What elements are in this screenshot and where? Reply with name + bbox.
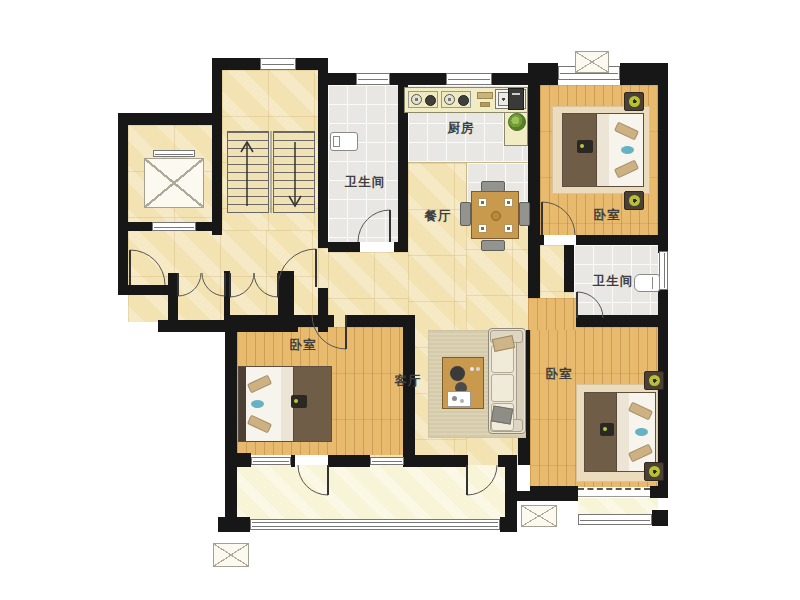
wall: [328, 455, 370, 467]
staircase-icon: [227, 131, 269, 213]
plate-icon: [504, 224, 513, 233]
room-label-bedroom-right-top: 卧室: [594, 207, 621, 224]
burner-icon: [444, 94, 455, 105]
pillow-icon: [614, 160, 639, 179]
wall: [564, 245, 574, 292]
window-icon: [578, 514, 652, 525]
ac-unit-icon: [521, 505, 557, 527]
bed-sheet: [617, 393, 629, 471]
wall: [403, 315, 415, 467]
wall: [404, 455, 468, 467]
balcony-window-icon: [250, 519, 500, 530]
wall: [294, 315, 334, 327]
wall: [158, 320, 298, 332]
wall: [620, 63, 668, 85]
chair-icon: [481, 240, 505, 251]
decor-icon: [476, 367, 480, 371]
plate-icon: [478, 224, 487, 233]
vent-icon: [480, 102, 490, 107]
washer-icon: [330, 132, 358, 151]
toilet-tank: [652, 277, 657, 289]
chair-icon: [519, 202, 530, 226]
wall: [517, 491, 578, 501]
wall: [540, 235, 544, 245]
pillow-icon: [247, 375, 272, 394]
wall: [500, 517, 517, 532]
bed-sheet: [597, 114, 609, 186]
wall: [212, 58, 222, 235]
nightstand-lamp-icon: [624, 191, 644, 210]
burner-icon: [411, 94, 422, 105]
pillow-icon: [614, 122, 639, 141]
bed-icon: [562, 113, 644, 187]
elevator-door-icon: [153, 150, 195, 157]
wall: [576, 315, 668, 327]
decor-icon: [450, 366, 465, 381]
room-label-kitchen: 厨房: [448, 120, 475, 137]
wall: [318, 58, 328, 248]
sofa-back: [516, 331, 524, 431]
wall: [225, 465, 237, 523]
corridor-nook-floor: [540, 245, 564, 298]
room-label-bathroom-main: 卫生间: [345, 174, 386, 191]
staircase-icon: [273, 131, 315, 213]
wall: [505, 465, 517, 519]
headboard: [239, 367, 246, 441]
elevator-icon: [144, 158, 204, 208]
bedside-remote: [600, 423, 614, 436]
accent-pillow-icon: [621, 146, 634, 154]
dining-table-icon: [471, 191, 519, 239]
wall: [576, 235, 668, 245]
decor-icon: [470, 367, 474, 371]
wall: [408, 73, 446, 85]
washer-detail: [333, 136, 340, 147]
ac-unit-icon: [575, 51, 609, 73]
threshold-sill: [152, 222, 196, 231]
wall: [118, 113, 128, 295]
tray-item: [460, 399, 464, 403]
wall: [528, 63, 558, 85]
wall: [346, 315, 408, 327]
plate-icon: [504, 198, 513, 207]
wall: [528, 63, 540, 298]
stove-icon: [441, 91, 471, 108]
wall: [225, 315, 237, 462]
bathroom-main-floor: [328, 85, 398, 242]
threshold-line: [578, 496, 650, 497]
floor-plan: 厨房 卫生间 餐厅 卧室 卫生间 卧室 客厅 卧室: [0, 0, 800, 600]
sofa-icon: [488, 328, 526, 434]
wall: [278, 271, 294, 322]
pillow-icon: [628, 402, 653, 421]
stove-icon: [408, 91, 438, 108]
wall: [652, 510, 668, 526]
nightstand-lamp-icon: [644, 371, 664, 390]
wall: [650, 486, 668, 498]
bedroom-entry-floor: [528, 298, 577, 330]
balcony-floor: [237, 465, 505, 521]
burner-icon: [458, 95, 469, 106]
room-label-bedroom-left: 卧室: [290, 337, 317, 354]
wall: [196, 222, 212, 231]
wall: [394, 242, 408, 252]
window-icon: [659, 251, 668, 290]
bedside-remote: [577, 140, 593, 153]
tray-icon: [447, 391, 471, 407]
room-label-bathroom-ensuite: 卫生间: [593, 273, 634, 290]
burner-icon: [425, 95, 436, 106]
wall: [328, 73, 356, 85]
wall: [168, 273, 178, 322]
wall: [658, 85, 668, 245]
wall: [224, 271, 230, 322]
accent-pillow-icon: [635, 428, 648, 436]
vent-icon: [477, 92, 493, 99]
bedside-remote: [291, 395, 307, 408]
tray-item: [452, 396, 457, 401]
window-icon: [356, 73, 390, 85]
bed-icon: [238, 366, 332, 442]
nightstand-lamp-icon: [624, 92, 644, 111]
wall: [212, 58, 260, 70]
wall: [218, 517, 250, 532]
wall: [118, 113, 222, 125]
accent-pillow-icon: [251, 400, 264, 408]
sliding-opening: [578, 488, 650, 490]
bed-icon: [584, 392, 656, 472]
sofa-throw: [491, 405, 513, 424]
wall: [291, 455, 295, 467]
plant-icon: [508, 113, 526, 131]
pillow-icon: [247, 415, 272, 434]
window-icon: [370, 457, 404, 465]
toilet-icon: [634, 274, 660, 292]
chair-icon: [460, 202, 471, 226]
window-icon: [260, 58, 296, 70]
wall: [658, 290, 668, 318]
room-label-living: 客厅: [395, 373, 422, 390]
fridge-icon: [508, 88, 524, 110]
pillow-icon: [628, 444, 653, 463]
plate-icon: [478, 198, 487, 207]
sofa-cushion: [491, 374, 514, 402]
ac-unit-icon: [213, 543, 249, 567]
window-icon: [446, 73, 492, 85]
coffee-table-icon: [442, 357, 484, 409]
bowl-icon: [491, 211, 501, 221]
window-icon: [251, 457, 291, 465]
room-label-dining: 餐厅: [425, 208, 452, 225]
room-label-bedroom-right-bottom: 卧室: [546, 366, 573, 383]
wall: [128, 222, 152, 231]
wall: [328, 242, 360, 252]
nightstand-lamp-icon: [644, 462, 664, 481]
